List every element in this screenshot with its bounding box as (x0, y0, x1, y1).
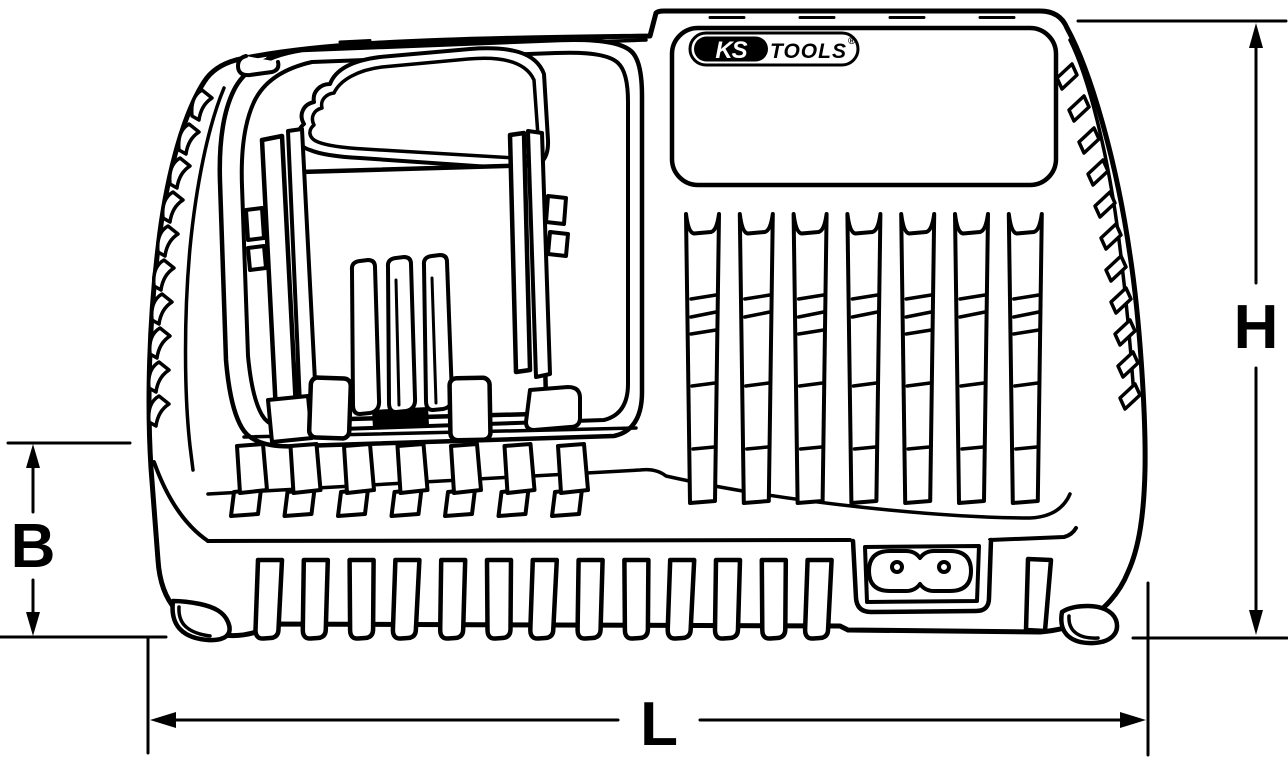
front-fin (393, 560, 420, 639)
right-rail-notch (548, 232, 568, 256)
vent-slot (1009, 214, 1042, 503)
vent-cross-line (1016, 447, 1037, 449)
b-arrowhead-up (26, 444, 40, 468)
front-fin (624, 560, 648, 639)
left-rail-notch (246, 208, 264, 240)
vent-cross-line (693, 447, 714, 449)
b-arrowhead-down (26, 612, 40, 636)
front-fin (715, 560, 740, 639)
deck-rib (505, 444, 535, 493)
deck-rib (237, 444, 267, 493)
logo-text-tools: TOOLS (770, 40, 847, 63)
vent-cross-line (908, 447, 929, 449)
dimension-label-b: B (11, 512, 56, 581)
brand-logo: KS TOOLS ® (690, 33, 858, 65)
vent-slot (686, 214, 719, 503)
h-arrowhead-up (1249, 23, 1263, 48)
power-inlet (853, 540, 991, 612)
left-rail-notch (248, 246, 266, 270)
dimension-label-l: L (640, 690, 678, 759)
top-edge-tick (340, 41, 370, 43)
deck-rib (558, 444, 588, 493)
top-edge-tick (595, 36, 625, 38)
front-fin (578, 560, 603, 639)
deck-rib (344, 444, 374, 493)
charger-technical-drawing: KS TOOLS ® (0, 0, 1288, 760)
top-edge-tick (425, 39, 455, 41)
contact-finger (352, 260, 379, 414)
contact-finger (388, 257, 415, 412)
front-fin (762, 560, 786, 639)
dimension-b: B (0, 443, 166, 637)
vent-cross-line (747, 447, 768, 449)
front-fin (256, 560, 283, 639)
front-fin (668, 560, 695, 639)
vent-cross-line (854, 447, 875, 449)
vent-slot (740, 214, 773, 503)
vent-slot (847, 214, 880, 503)
front-fin (805, 560, 832, 639)
c8-socket-outline (869, 551, 971, 591)
vent-cross-line (962, 447, 983, 449)
battery-bay (220, 40, 642, 447)
front-fin (530, 560, 557, 639)
deck-rib (291, 444, 321, 493)
drawing-canvas: KS TOOLS ® (0, 0, 1288, 760)
vent-slot (794, 214, 827, 503)
left-rail-foot (268, 396, 312, 442)
right-rail-foot (526, 387, 580, 430)
front-face-top-line (208, 540, 850, 541)
deck-rib (451, 444, 481, 493)
front-fin (303, 560, 328, 639)
front-fin (440, 560, 465, 639)
label-plate: KS TOOLS ® (672, 28, 1056, 185)
right-rail-notch (546, 196, 566, 224)
l-arrowhead-right (1120, 712, 1146, 728)
logo-text-ks: KS (715, 37, 747, 64)
dimension-label-h: H (1234, 293, 1279, 362)
h-arrowhead-down (1249, 610, 1263, 635)
vent-slot (955, 214, 988, 503)
front-fin (487, 560, 511, 639)
deck-rib (398, 444, 428, 493)
vent-cross-line (801, 447, 822, 449)
l-arrowhead-left (150, 712, 176, 728)
logo-registered-mark: ® (848, 36, 856, 47)
right-rail-strip (510, 133, 530, 372)
bay-latch-tab (309, 377, 351, 438)
vent-slot (901, 214, 934, 503)
front-fin (350, 560, 374, 639)
foot-right (1061, 606, 1117, 643)
front-fin-right (1026, 559, 1051, 631)
bay-latch-tab (449, 378, 490, 441)
